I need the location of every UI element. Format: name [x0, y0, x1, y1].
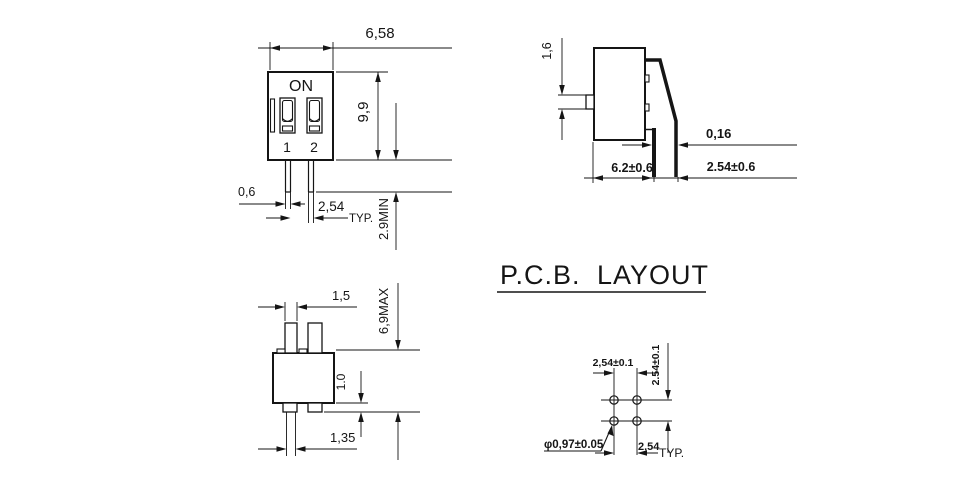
switch-body-bottom: [273, 353, 334, 403]
dim-pcb-pitch-v: 2.54±0.1: [650, 344, 662, 385]
dim-front-height: 9,9: [355, 102, 372, 123]
splayed-pin: [645, 60, 676, 177]
dim-bottom-standoff: 1.0: [334, 373, 348, 390]
side-view-dimensions: 1,6 0,16 6.2±0.6 2.54±0.6: [540, 38, 797, 183]
pcb-title-right: LAYOUT: [597, 260, 709, 290]
switch-slot-2: [307, 98, 322, 133]
dim-front-width: 6,58: [365, 25, 394, 42]
dim-bottom-depth-max: 6,9MAX: [376, 288, 391, 335]
dim-bottom-pin-width: 1,5: [332, 288, 350, 303]
on-label: ON: [289, 78, 313, 95]
dim-front-pin-length-min: 2.9MIN: [376, 198, 391, 240]
dim-side-pin-thickness: 0,16: [706, 126, 731, 141]
switch-1-label: 1: [283, 139, 291, 155]
switch-2-label: 2: [310, 139, 318, 155]
dim-pcb-hole-diameter: φ0,97±0.05: [544, 439, 604, 451]
dim-pcb-row-pitch: 2,54: [638, 441, 660, 453]
bottom-stub-1: [283, 403, 297, 412]
dim-side-actuator: 1,6: [540, 42, 554, 59]
side-tab-upper: [645, 75, 649, 82]
dim-pcb-row-pitch-typ: TYP.: [659, 446, 684, 460]
switch-body-side: [594, 48, 645, 140]
technical-drawing-sheet: ON 1 2 6,58 9,9 2.9MIN 0,6: [0, 0, 960, 488]
front-view: ON 1 2 6,58 9,9 2.9MIN 0,6: [238, 25, 452, 250]
actuator: [586, 95, 594, 109]
pcb-title-left: P.C.B.: [500, 260, 581, 290]
front-pins: [286, 160, 314, 223]
dim-bottom-pin-base: 1,35: [330, 430, 355, 445]
bottom-pin-2: [308, 323, 322, 353]
dim-side-pin-spread: 2.54±0.6: [707, 160, 756, 174]
bottom-stub-2: [308, 403, 322, 412]
dim-side-body-depth: 6.2±0.6: [611, 161, 653, 175]
side-tab-lower: [645, 104, 649, 111]
switch-slot-1: [280, 98, 295, 133]
body-side-notch: [271, 99, 275, 132]
side-view: 1,6 0,16 6.2±0.6 2.54±0.6: [540, 38, 797, 183]
bottom-pin-1: [285, 323, 297, 353]
dim-front-pin-width: 0,6: [238, 185, 255, 199]
dim-pcb-pitch-h: 2,54±0.1: [593, 357, 634, 369]
dim-front-pin-pitch-typ: TYP.: [349, 213, 373, 225]
bottom-view: 1,5 6,9MAX 1.0 1,35: [258, 283, 420, 460]
dim-front-pin-pitch: 2,54: [318, 199, 345, 214]
pcb-layout: P.C.B. LAYOUT 2,54±0.1 2.54±0.1 2,54 TYP…: [497, 260, 709, 460]
